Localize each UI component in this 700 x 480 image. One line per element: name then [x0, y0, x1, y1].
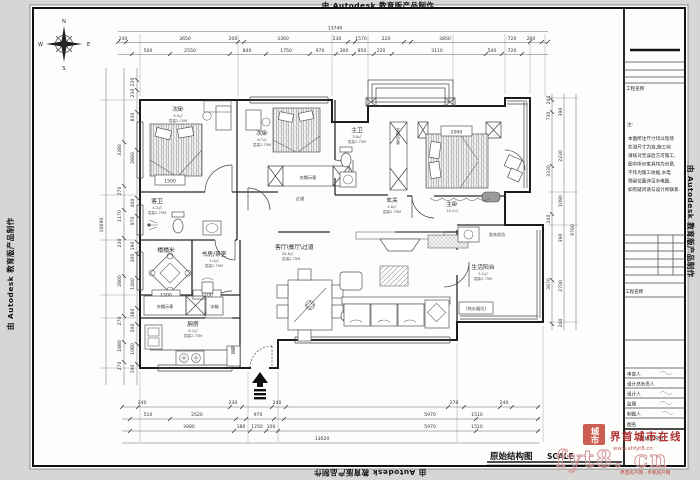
room-note: 层高2.75M	[148, 210, 166, 215]
room-note: 9.5㎡	[173, 113, 183, 118]
compass-n: N	[62, 19, 66, 25]
room-tatami: 榻榻米	[157, 246, 175, 254]
room-note: 8.7㎡	[257, 137, 267, 142]
room-note: 层高2.75M	[474, 276, 492, 281]
dim-bottom-total: 13020	[315, 436, 330, 442]
watermark-right: 由 Autodesk 教育版产品制作	[686, 165, 695, 278]
dim: 380	[130, 309, 136, 318]
room-kitchen: 厨房	[187, 320, 199, 328]
room-note: 6.1㎡	[188, 328, 198, 333]
dim: 220	[382, 36, 391, 42]
titleblock-note-line: 图中所示家具均为示意,	[628, 161, 676, 168]
dim: 3110	[431, 48, 443, 54]
wardrobe-column-label: 衣柜示意	[395, 126, 401, 145]
compass-e: E	[87, 42, 90, 48]
titleblock-note-line: 预留位置详见水电图,	[628, 178, 671, 185]
dim: 240	[500, 400, 509, 406]
dim: 230	[130, 89, 136, 98]
washer-label: 洗衣机位	[489, 231, 506, 238]
dim: 390	[558, 108, 564, 117]
dim: 2860	[130, 152, 136, 164]
heater-label: (热水器位)	[466, 305, 486, 312]
wardrobe-top-label: 衣帽示意	[300, 174, 317, 181]
room-note: 4.2㎡	[152, 205, 162, 210]
dim: 200	[130, 324, 136, 333]
room-note: 层高2.75M	[348, 139, 366, 144]
dim: 1080	[130, 343, 136, 355]
room-note: 层高2.75M	[282, 256, 300, 261]
dim: 100	[267, 424, 276, 430]
dim: 270	[450, 400, 459, 406]
room-note: 层高2.75M	[253, 142, 271, 147]
room-note: 层高2.75M	[184, 333, 202, 338]
dim: 230	[130, 78, 136, 87]
dim: 5970	[424, 412, 436, 418]
watermark-top: 由 Autodesk 教育版产品制作	[322, 1, 435, 10]
room-note: 3.8㎡	[352, 134, 362, 139]
dim: 2230	[558, 150, 564, 162]
dim: 240	[138, 400, 147, 406]
room-bath-guest: 客卫	[151, 197, 163, 205]
titleblock-note-line: 请核对无误后方可施工,	[628, 152, 676, 159]
dim-tatami: 1500	[160, 293, 172, 299]
dim: 300	[130, 254, 136, 263]
titleblock-field: 监理	[627, 401, 637, 408]
dim: 1510	[471, 424, 483, 430]
dim: 270	[117, 362, 123, 371]
watermark-bottom: 由 Autodesk 教育版产品制作	[314, 468, 427, 477]
room-note: 28.6㎡	[282, 251, 294, 256]
dim: 3650	[179, 36, 191, 42]
dim: 730	[546, 112, 552, 121]
dim: 240	[558, 319, 564, 328]
room-note: 5.2㎡	[478, 271, 488, 276]
dim: 3280	[117, 144, 123, 156]
dim: 390	[558, 234, 564, 243]
dim: 510	[144, 412, 153, 418]
room-note: 层高2.75M	[383, 209, 401, 214]
sheet	[30, 5, 688, 469]
room-note: 4.6㎡	[387, 204, 397, 209]
dim: 3670	[546, 278, 552, 290]
dim: 230	[117, 239, 123, 248]
dim-right-total: 9760	[570, 224, 576, 236]
dim: 400	[130, 199, 136, 208]
dim-master-bed: 2000	[451, 130, 463, 136]
dim: 300	[340, 48, 349, 54]
titleblock-record-label: 工程名称	[625, 288, 644, 295]
dim: 1090	[558, 195, 564, 207]
fridge-label: 冰箱	[210, 303, 218, 310]
dim: 1570	[355, 36, 367, 42]
dim-study: 1100	[201, 293, 213, 299]
titleblock-note-line: 不作为施工依据,水电	[628, 169, 671, 176]
dim: 2860	[117, 275, 123, 287]
dim: 840	[243, 48, 252, 54]
titleblock-field: 制图人	[627, 411, 641, 418]
drawing-canvas: 由 Autodesk 教育版产品制作 由 Autodesk 教育版产品制作 由 …	[0, 0, 700, 480]
compass-w: W	[38, 42, 43, 48]
flue-label: 烟道	[230, 344, 236, 355]
room-bedroom2: 次卧	[256, 129, 268, 137]
titleblock-field: 设计人	[627, 391, 641, 398]
room-note: 层高2.75M	[205, 263, 223, 268]
room-living: 客厅\餐厅\过道	[275, 243, 314, 251]
dim: 3850	[439, 36, 451, 42]
room-bedroom1: 次卧	[172, 105, 184, 113]
titleblock-note-line: 实测尺寸为准,施工前	[628, 144, 671, 151]
cad-floorplan-screenshot: 由 Autodesk 教育版产品制作 由 Autodesk 教育版产品制作 由 …	[0, 0, 700, 480]
dim: 1460	[130, 278, 136, 290]
wardrobe-bottom-label: 衣帽示意	[157, 303, 174, 310]
dim: 850	[358, 48, 367, 54]
drawing-title-text: 原始结构图	[490, 451, 533, 462]
dim: 1250	[251, 424, 263, 430]
titleblock-field: 设计总负责人	[627, 381, 655, 388]
site-big-logo: fyt8. cn	[556, 446, 669, 473]
site-footer: 界首房产网 · 手机房产网	[620, 469, 671, 476]
dim: 2520	[191, 412, 203, 418]
seal-text: 城市	[589, 426, 599, 445]
watermark-left: 由 Autodesk 教育版产品制作	[6, 217, 15, 330]
titleblock-project-label: 工程名称	[626, 85, 645, 92]
dim: 3330	[546, 165, 552, 177]
dim: 240	[546, 96, 552, 105]
dim: 240	[546, 215, 552, 224]
dim: 230	[333, 36, 342, 42]
room-study: 书房/茶室	[201, 250, 226, 258]
room-note: 层高2.75M	[169, 118, 187, 123]
dim: 230	[229, 400, 238, 406]
dim-bed1: 1500	[164, 179, 176, 185]
dim: 720	[508, 48, 517, 54]
titleblock-note-title: 注:	[627, 121, 634, 128]
room-note: 5.4㎡	[209, 258, 219, 263]
room-entry: 玄关	[386, 196, 398, 204]
room-master: 主卧	[446, 200, 458, 208]
dim: 830	[130, 113, 136, 122]
dim: 970	[316, 48, 325, 54]
dim: 190	[130, 242, 136, 251]
room-note: 14.2㎡	[446, 208, 458, 213]
titleblock-note-line: 本图所注尺寸均以现场	[628, 135, 674, 142]
dim: 220	[377, 48, 386, 54]
dim: 500	[144, 48, 153, 54]
dim: 270	[117, 317, 123, 326]
dim: 1750	[280, 48, 292, 54]
dim: 5970	[424, 424, 436, 430]
dim: 1880	[117, 340, 123, 352]
dim: 2700	[558, 280, 564, 292]
site-name: 界首城市在线	[610, 430, 682, 443]
dim: 720	[508, 36, 517, 42]
dim: 1510	[471, 412, 483, 418]
dim: 190	[130, 365, 136, 374]
titleblock-note-line: 如有疑问请与设计师联系.	[628, 186, 680, 193]
dim: 970	[130, 217, 136, 226]
dim: 3360	[277, 36, 289, 42]
titleblock-drawing-label: 图名	[627, 421, 636, 428]
dim: 1170	[117, 210, 123, 222]
dim: 970	[254, 412, 263, 418]
titleblock-field: 审定人	[627, 371, 641, 378]
dim: 200	[229, 36, 238, 42]
dim: 240	[119, 36, 128, 42]
dim: 270	[117, 187, 123, 196]
dim: 240	[273, 400, 282, 406]
compass-s: S	[62, 66, 65, 72]
room-corridor: 过道	[296, 195, 305, 202]
room-balcony-service: 生活阳台	[471, 263, 494, 271]
room-bath-main: 主卫	[351, 126, 363, 134]
dim-left-total: 10690	[99, 218, 105, 233]
dim: 180	[237, 424, 246, 430]
dim: 540	[488, 48, 497, 54]
dim: 3080	[183, 424, 195, 430]
dim: 2550	[184, 48, 196, 54]
dim: 240	[527, 36, 536, 42]
dim-top-total: 13740	[328, 26, 343, 32]
